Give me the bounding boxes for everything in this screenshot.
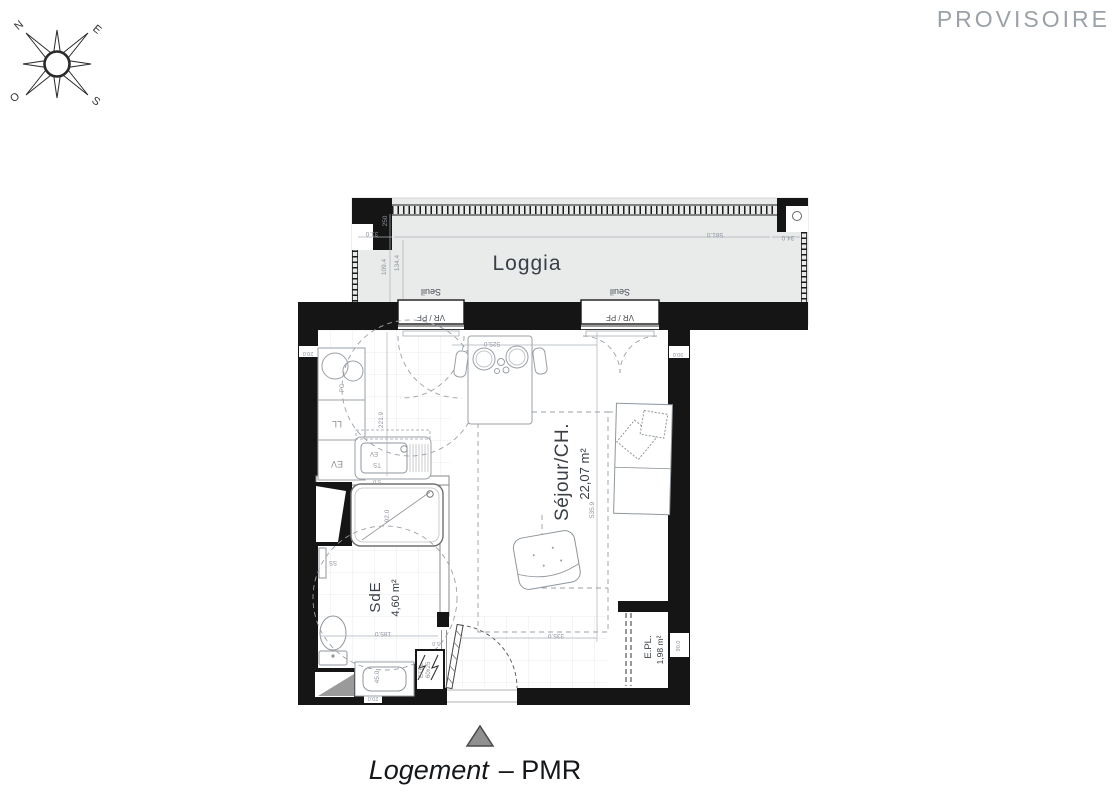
dim-wall-left: 20.0 [303, 350, 314, 356]
sink-drainer [410, 444, 428, 472]
north-pointer-triangle [467, 726, 493, 746]
dim-wall-right-top: 90.0 [673, 351, 684, 357]
dim-loggia-width: 581.0 [706, 231, 723, 238]
armchair [512, 529, 582, 591]
dim-loggia-d2: 134.4 [394, 254, 401, 271]
loggia-pillar-right-notch [786, 206, 808, 232]
dining-table [453, 336, 548, 424]
compass-north-label: N [12, 19, 26, 33]
sde-label: SdE [367, 581, 384, 612]
hall-floor-tiles [449, 616, 608, 688]
epl-closet: E.PL. 1,98 m² [626, 613, 665, 686]
dim-loggia-depth: 250 [382, 215, 389, 226]
compass-rose: N E O S [8, 19, 104, 109]
sink-label: EV [370, 450, 378, 456]
floor-plan-sheet: PROVISOIRE N E O S [0, 0, 1118, 800]
compass-east-label: E [90, 23, 103, 37]
dim-loggia-d1: 109.4 [381, 258, 388, 275]
sink-label-2: TS [373, 461, 381, 467]
window-right: VR / PF Seuil [581, 287, 659, 373]
window-right-swing-arc-1 [583, 336, 620, 373]
dim-hall-width: 335.0 [547, 632, 564, 639]
electrical-panel: ETEL 60x25 [416, 650, 444, 690]
door-jamb-sde [437, 612, 449, 627]
compass-south-label: S [89, 95, 102, 109]
elec-panel-size: 60x25 [426, 661, 432, 678]
cooktop-label: PC [340, 383, 346, 392]
compass-star [23, 30, 91, 98]
epl-area: 1,98 m² [655, 635, 665, 664]
compass-west-label: O [8, 90, 23, 105]
dim-loggia-right: 34.0 [781, 234, 794, 241]
floor-plan: PROVISOIRE N E O S [0, 0, 1118, 800]
epl-wall-stub [618, 601, 670, 612]
elec-panel-label: ETEL [419, 662, 425, 678]
watermark-provisoire: PROVISOIRE [937, 6, 1110, 32]
cabinet-label: EV [331, 459, 343, 469]
title-block: Logement– PMR [369, 726, 582, 785]
dim-kitchen-depth: 221.9 [378, 411, 385, 428]
dim-shower-gap: 5.0 [373, 478, 381, 484]
pillow-2 [640, 410, 668, 438]
dim-loggia-left: 31.0 [365, 230, 378, 237]
window-right-label: VR / PF [606, 313, 634, 322]
dim-shower-width: 92.0 [384, 509, 391, 522]
window-right-seuil: Seuil [610, 287, 630, 297]
toilet [319, 616, 347, 665]
bed [614, 403, 673, 514]
furniture-zone-dashed [478, 412, 608, 632]
dim-jamb: 5.0 [432, 640, 440, 646]
chair-right [532, 347, 548, 374]
dim-epl-width: 90.0 [676, 641, 682, 652]
dim-sejour-depth: 535.9 [589, 501, 596, 518]
dim-basin-width: 45.0 [374, 670, 381, 683]
sejour-label: Séjour/CH. [552, 423, 573, 521]
window-left-label: VR / PF [417, 313, 445, 322]
sejour: 525.0 Séjour/CH. 22,07 m² 535.9 335.0 [452, 332, 672, 642]
sde-area: 4,60 m² [390, 579, 402, 617]
washer-label: LL [332, 419, 342, 429]
loggia-label: Loggia [492, 252, 561, 275]
plan-title-type: – PMR [499, 755, 582, 785]
sejour-area: 22,07 m² [577, 448, 592, 500]
wall-top [298, 302, 808, 330]
dim-table-span: 525.0 [483, 340, 500, 347]
plan-title: Logement– PMR [369, 755, 582, 785]
window-left-seuil: Seuil [421, 287, 441, 297]
plan-title-name: Logement [369, 755, 491, 785]
epl-label: E.PL. [643, 635, 654, 658]
window-right-swing-arc-2 [620, 336, 657, 373]
chair-left [453, 350, 469, 377]
towel-rail-label: SS [329, 559, 337, 565]
dim-sde-width: 185.0 [374, 630, 391, 637]
